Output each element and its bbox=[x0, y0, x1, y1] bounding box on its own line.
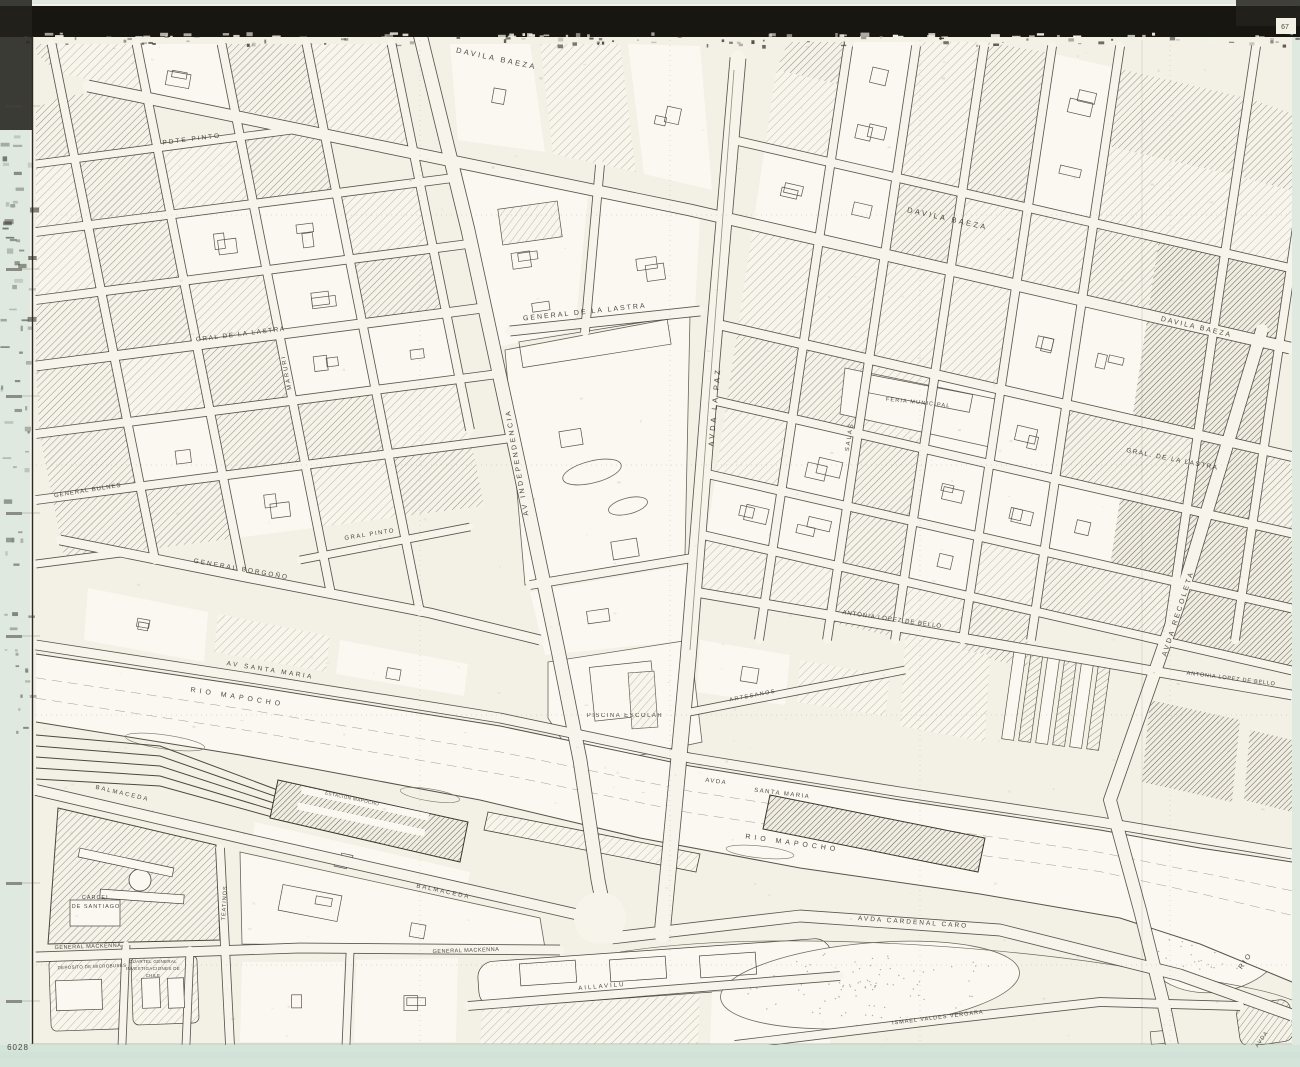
sheet-67-label: 67 bbox=[1281, 24, 1289, 31]
map-scan-sheet: DAVILA BAEZADAVILA BAEZADAVILA BAEZAPDTE… bbox=[0, 0, 1300, 1067]
piscina-escolar-label: PISCINA ESCOLAR bbox=[587, 713, 664, 719]
carcel-1-label: CARCEL bbox=[82, 895, 110, 901]
cuartel-3-label: CHILE bbox=[146, 973, 161, 978]
carcel-2-label: DE SANTIAGO bbox=[72, 904, 121, 910]
map-canvas: DAVILA BAEZADAVILA BAEZADAVILA BAEZAPDTE… bbox=[0, 0, 1300, 1067]
cuartel-1-label: CUARTEL GENERAL bbox=[129, 959, 177, 964]
cuartel-2-label: INVESTIGACIONES DE bbox=[126, 966, 180, 971]
sheet-6028-label: 6028 bbox=[7, 1043, 29, 1052]
